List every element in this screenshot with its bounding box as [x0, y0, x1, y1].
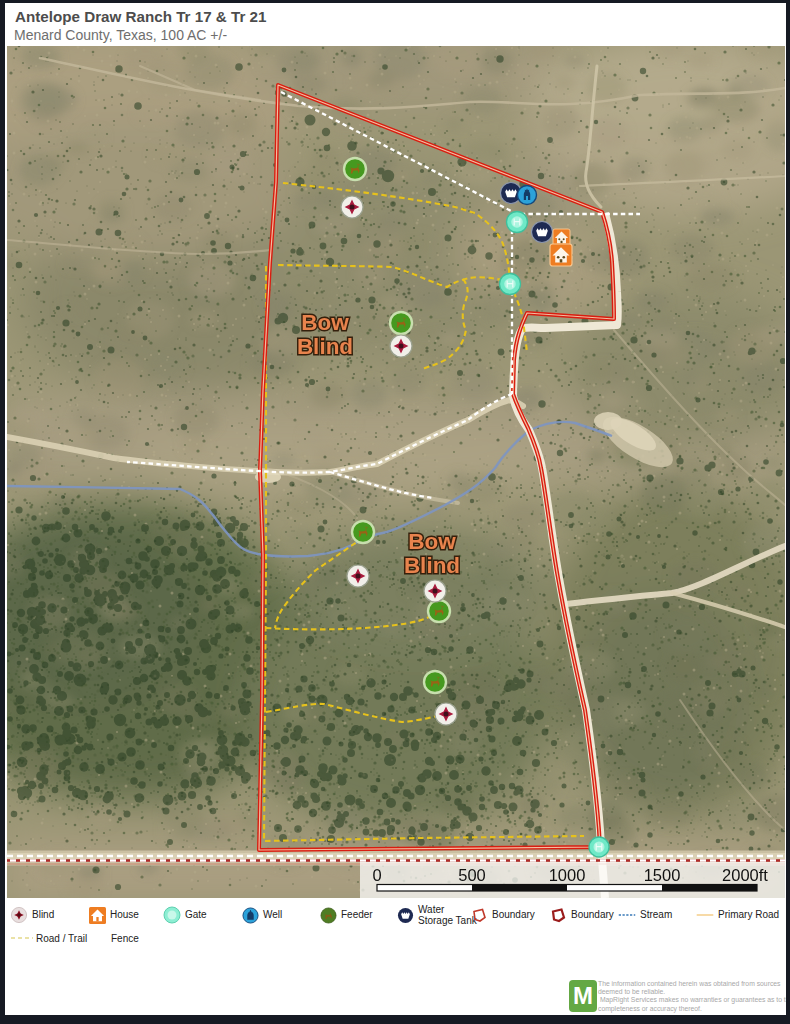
svg-text:500: 500 — [458, 866, 486, 884]
svg-text:Bow: Bow — [301, 310, 349, 335]
svg-text:0: 0 — [372, 866, 381, 884]
svg-text:Blind: Blind — [404, 553, 460, 578]
svg-text:2000ft: 2000ft — [722, 866, 768, 884]
svg-text:Blind: Blind — [297, 334, 353, 359]
svg-text:1500: 1500 — [644, 866, 681, 884]
svg-text:1000: 1000 — [549, 866, 586, 884]
svg-text:Bow: Bow — [408, 529, 456, 554]
